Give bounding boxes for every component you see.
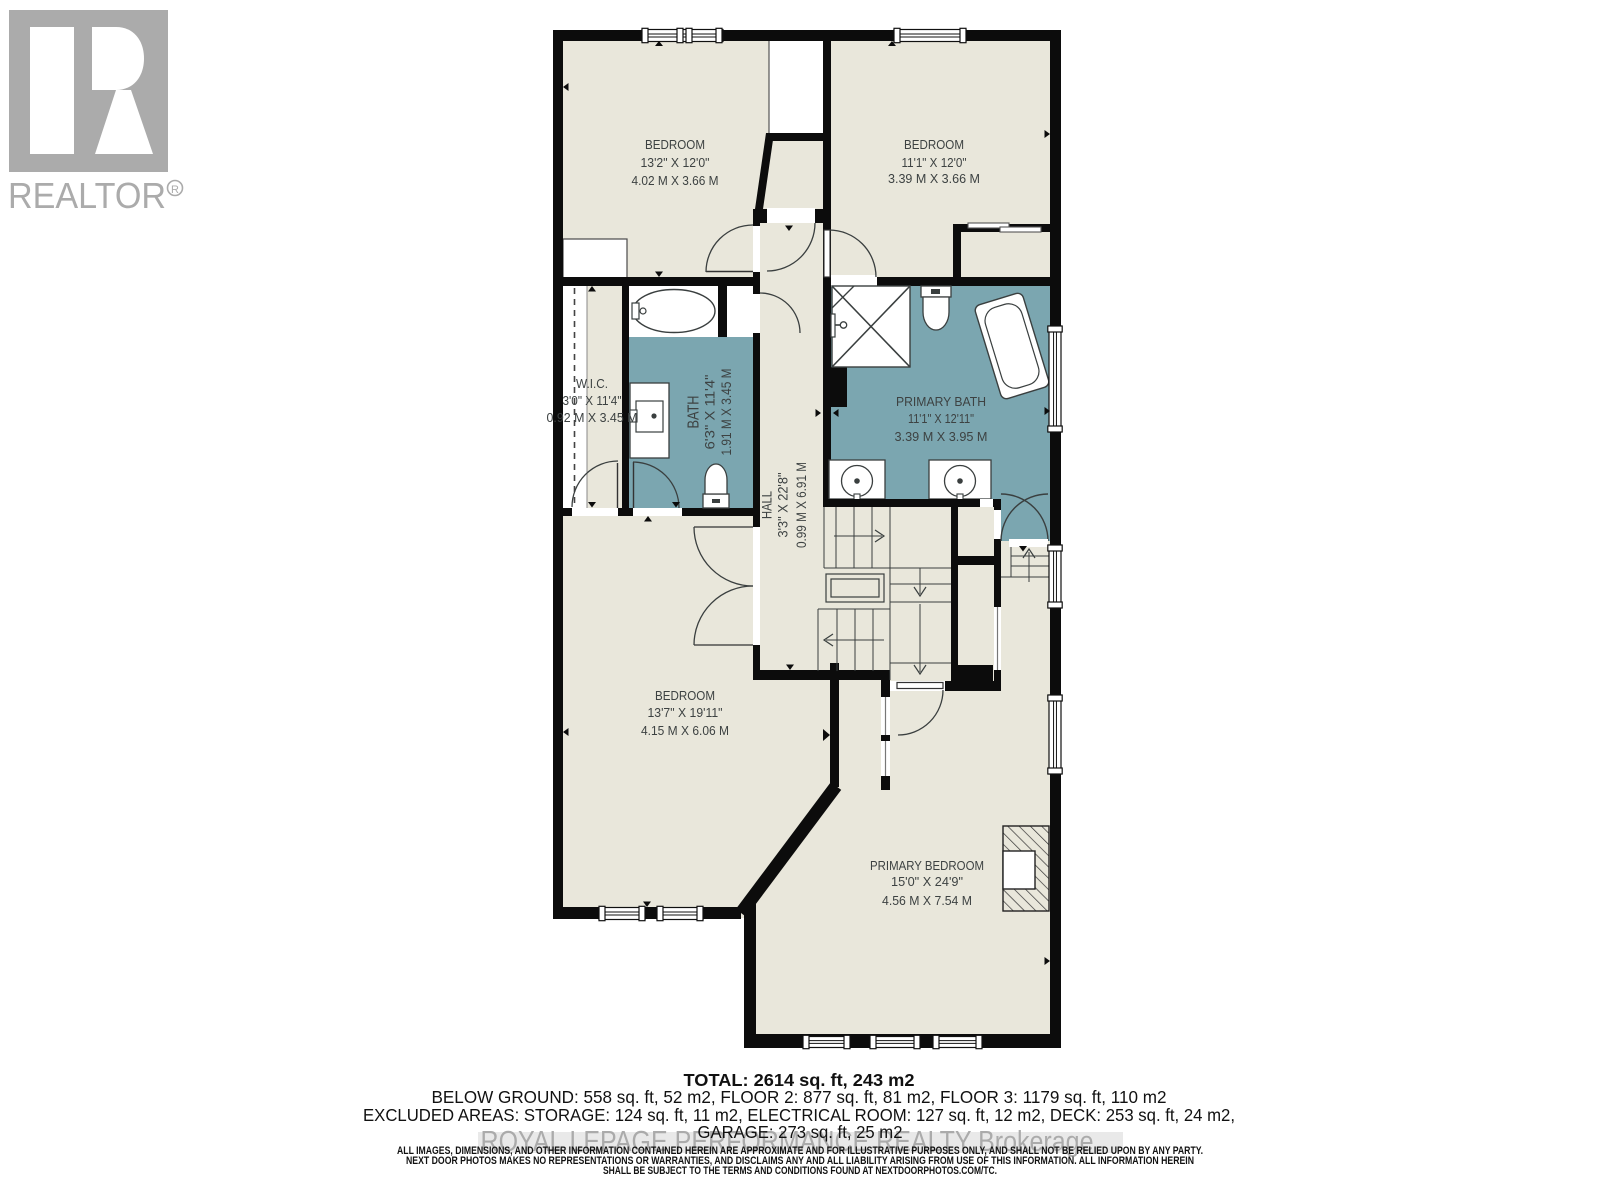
svg-text:SHALL BE SUBJECT TO THE TERMS: SHALL BE SUBJECT TO THE TERMS AND CONDIT… — [603, 1165, 997, 1177]
svg-text:4.15 M X 6.06 M: 4.15 M X 6.06 M — [641, 724, 729, 738]
svg-text:3'3" X 22'8": 3'3" X 22'8" — [776, 472, 791, 537]
svg-text:6'3" X 11'4": 6'3" X 11'4" — [703, 374, 718, 449]
svg-text:GARAGE: 273 sq. ft, 25 m2: GARAGE: 273 sq. ft, 25 m2 — [698, 1122, 903, 1142]
svg-text:HALL: HALL — [759, 491, 775, 519]
svg-text:1.91 M X 3.45 M: 1.91 M X 3.45 M — [719, 369, 734, 456]
svg-text:PRIMARY BATH: PRIMARY BATH — [896, 395, 986, 409]
svg-text:4.56 M X 7.54 M: 4.56 M X 7.54 M — [882, 894, 972, 908]
svg-text:0.99 M X 6.91 M: 0.99 M X 6.91 M — [794, 462, 809, 548]
svg-text:3.39 M X 3.95 M: 3.39 M X 3.95 M — [895, 430, 988, 444]
svg-text:0.92 M X 3.45 M: 0.92 M X 3.45 M — [547, 411, 638, 425]
svg-text:BELOW GROUND: 558 sq. ft, 52 m: BELOW GROUND: 558 sq. ft, 52 m2, FLOOR 2… — [432, 1087, 1167, 1107]
svg-text:13'7" X 19'11": 13'7" X 19'11" — [648, 706, 723, 720]
svg-text:11'1" X 12'11": 11'1" X 12'11" — [908, 412, 974, 426]
svg-text:BEDROOM: BEDROOM — [904, 138, 964, 152]
svg-text:R: R — [171, 184, 179, 196]
svg-text:3'0" X 11'4": 3'0" X 11'4" — [563, 394, 622, 408]
svg-text:W.I.C.: W.I.C. — [576, 377, 608, 391]
svg-text:13'2" X 12'0": 13'2" X 12'0" — [641, 156, 710, 170]
svg-text:BEDROOM: BEDROOM — [645, 138, 705, 152]
svg-text:REALTOR: REALTOR — [8, 175, 166, 216]
svg-text:BATH: BATH — [686, 396, 703, 429]
svg-text:11'1" X 12'0": 11'1" X 12'0" — [902, 156, 967, 170]
svg-text:3.39 M X 3.66 M: 3.39 M X 3.66 M — [888, 172, 980, 186]
svg-text:15'0" X 24'9": 15'0" X 24'9" — [891, 875, 963, 889]
svg-text:BEDROOM: BEDROOM — [655, 689, 715, 703]
svg-text:4.02 M X 3.66 M: 4.02 M X 3.66 M — [632, 174, 719, 188]
svg-text:PRIMARY BEDROOM: PRIMARY BEDROOM — [870, 859, 984, 873]
